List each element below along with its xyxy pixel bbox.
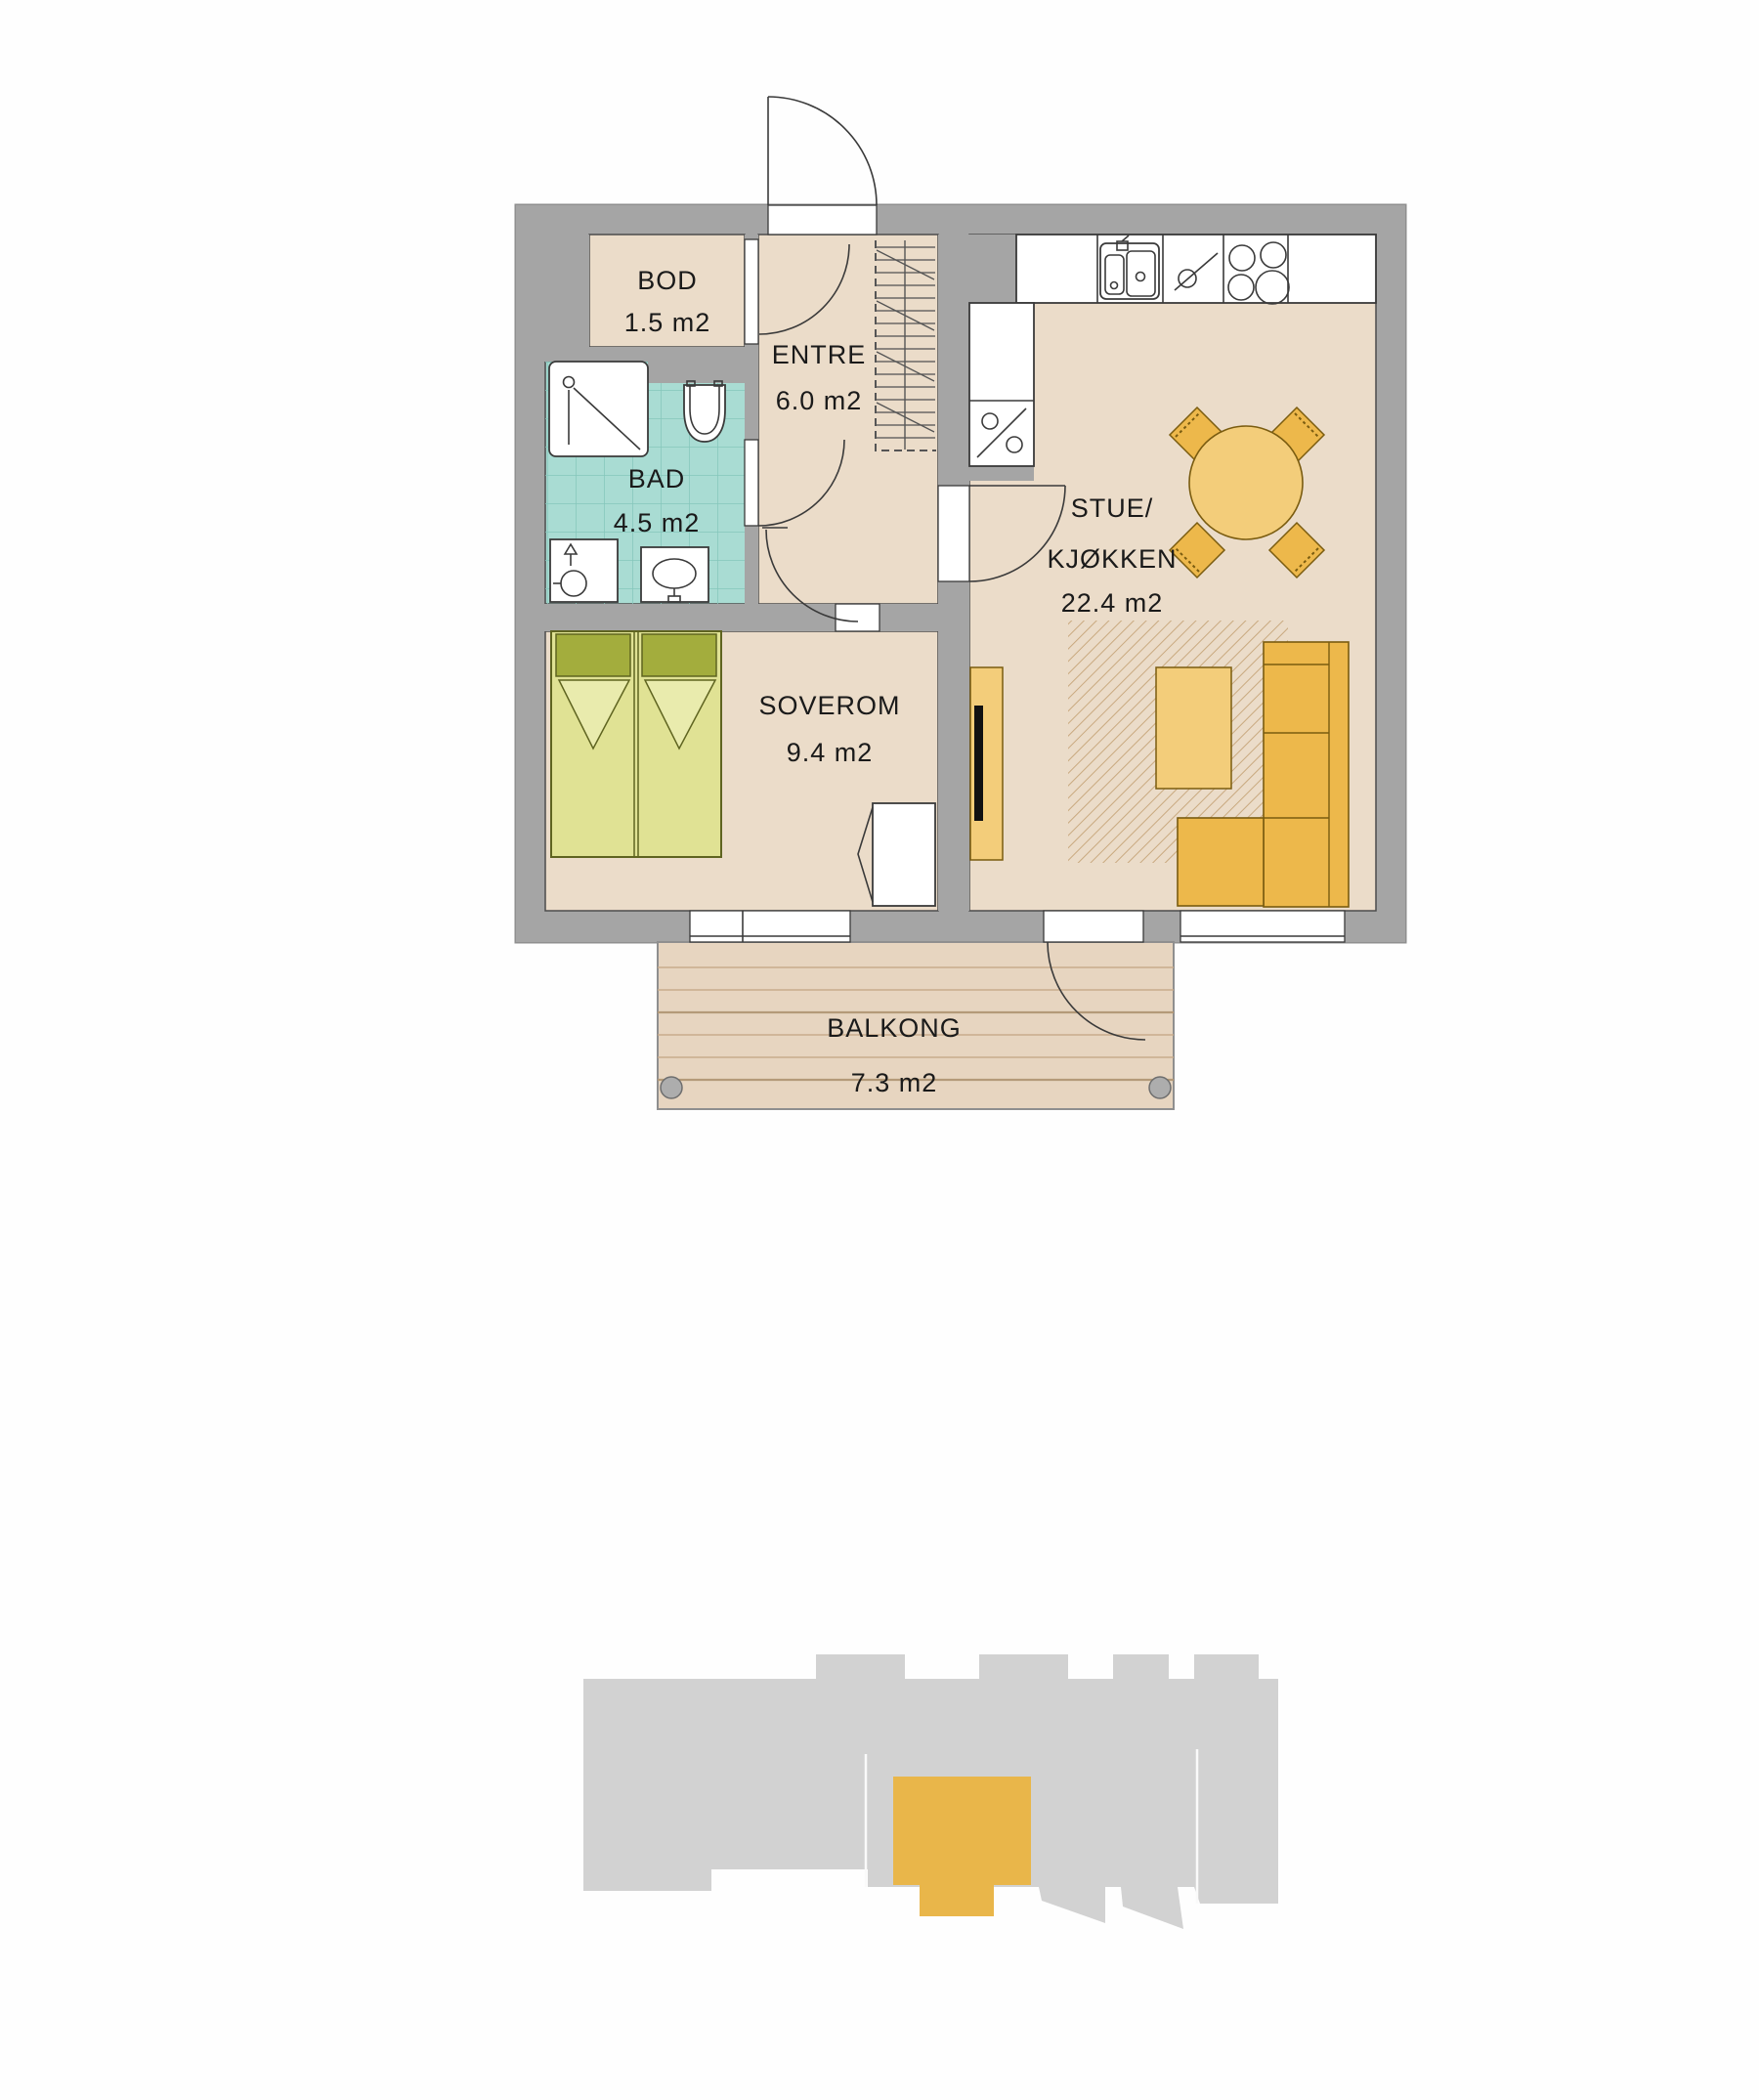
wall-top — [516, 205, 1405, 235]
label-entre: ENTRE — [772, 340, 867, 369]
label-stue-line2: KJØKKEN — [1047, 544, 1177, 574]
label-bad-area: 4.5 m2 — [614, 508, 701, 537]
label-balkong-area: 7.3 m2 — [851, 1068, 938, 1097]
site-plan — [583, 1654, 1278, 1929]
wall-central-bottom — [938, 581, 969, 911]
label-bod-area: 1.5 m2 — [624, 308, 711, 337]
label-entre-area: 6.0 m2 — [776, 386, 863, 415]
toilet-icon — [684, 381, 725, 442]
building-wing-angled — [1039, 1887, 1105, 1923]
pillow — [642, 634, 716, 676]
label-stue-line1: STUE/ — [1071, 493, 1154, 523]
kitchen-tall-cabinet — [969, 303, 1034, 466]
kitchen-counter — [1016, 235, 1376, 303]
wall-hall-soverom-right — [879, 604, 938, 631]
building-wing-angled — [1121, 1887, 1183, 1929]
wall-right — [1376, 205, 1405, 942]
stue-window — [1180, 911, 1345, 942]
wall-bod-left — [543, 235, 589, 347]
washbasin-icon — [641, 547, 708, 602]
label-soverom: SOVEROM — [758, 691, 900, 720]
tv — [974, 706, 983, 821]
wall-above-toilet — [648, 347, 746, 383]
floorplan-page: BOD 1.5 m2 ENTRE 6.0 m2 BAD 4.5 m2 SOVER… — [0, 0, 1759, 2100]
wall-hall-soverom-left — [543, 604, 836, 631]
double-bed — [551, 631, 721, 857]
entre-wardrobe — [876, 240, 936, 450]
wall-central-top — [938, 235, 969, 486]
sink-icon — [1100, 236, 1159, 299]
label-bod: BOD — [637, 266, 698, 295]
highlighted-unit — [893, 1777, 1031, 1916]
wall-stub-below-fridge — [969, 466, 1034, 481]
label-bad: BAD — [628, 464, 686, 493]
label-soverom-area: 9.4 m2 — [787, 738, 874, 767]
label-balkong: BALKONG — [827, 1013, 962, 1043]
label-stue-area: 22.4 m2 — [1061, 588, 1164, 618]
floorplan-svg: BOD 1.5 m2 ENTRE 6.0 m2 BAD 4.5 m2 SOVER… — [0, 0, 1759, 2100]
apartment-plan: BOD 1.5 m2 ENTRE 6.0 m2 BAD 4.5 m2 SOVER… — [516, 97, 1405, 1109]
balcony-post — [661, 1077, 682, 1098]
entrance-door — [768, 97, 877, 235]
coffee-table — [1156, 667, 1231, 789]
wall-left — [516, 205, 545, 942]
soverom-window — [690, 911, 850, 942]
pillow — [556, 634, 630, 676]
washing-machine-icon — [550, 539, 618, 602]
dining-table — [1189, 426, 1303, 539]
door-swing-arc — [768, 97, 877, 205]
wall-shaft-kitchen — [969, 235, 1016, 303]
shower-icon — [549, 362, 648, 456]
balcony-post — [1149, 1077, 1171, 1098]
